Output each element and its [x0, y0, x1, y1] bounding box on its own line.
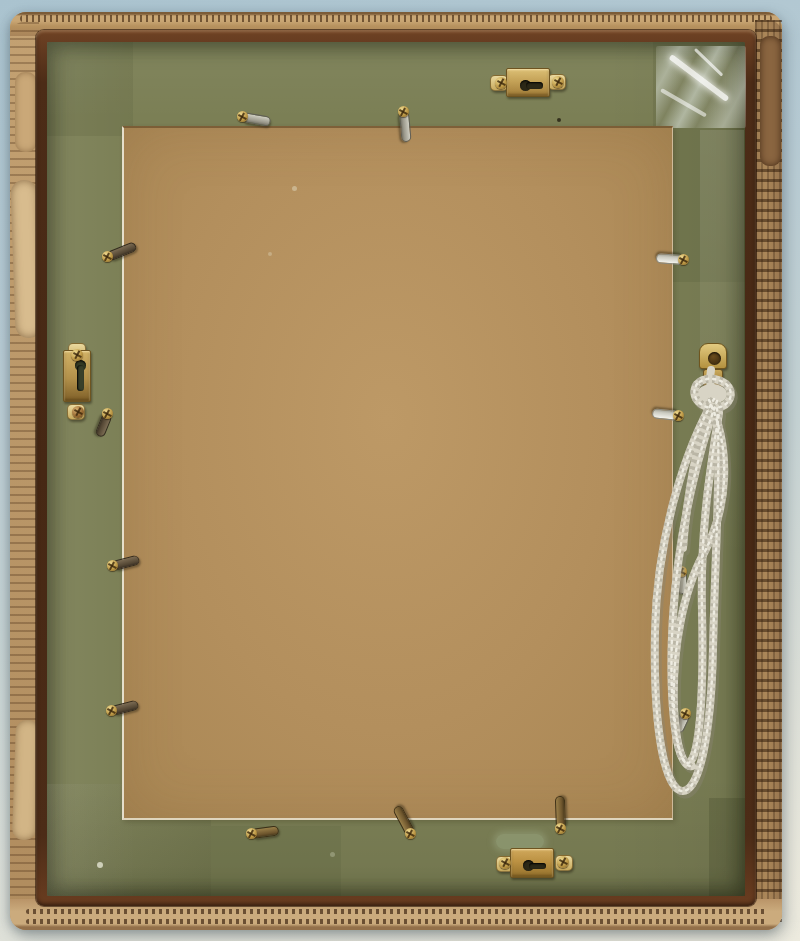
surface-speck — [97, 862, 103, 868]
surface-speck — [268, 252, 272, 256]
surface-speck — [557, 118, 561, 122]
surface-speck — [292, 186, 297, 191]
specks-layer — [0, 0, 800, 941]
surface-speck — [330, 852, 335, 857]
photo-frame-back-scene — [0, 0, 800, 941]
